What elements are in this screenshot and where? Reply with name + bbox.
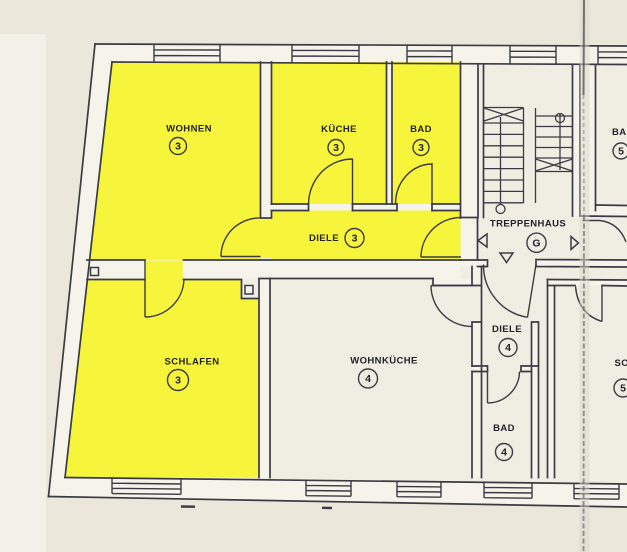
svg-text:WOHNKÜCHE: WOHNKÜCHE bbox=[350, 356, 417, 367]
svg-text:G: G bbox=[532, 237, 540, 249]
svg-text:3: 3 bbox=[175, 375, 181, 387]
svg-text:WOHNEN: WOHNEN bbox=[166, 124, 212, 135]
svg-text:3: 3 bbox=[175, 141, 181, 153]
svg-text:5: 5 bbox=[618, 146, 624, 158]
svg-text:KÜCHE: KÜCHE bbox=[321, 124, 357, 135]
svg-text:5: 5 bbox=[620, 383, 626, 395]
svg-text:3: 3 bbox=[352, 233, 358, 245]
svg-text:4: 4 bbox=[501, 447, 507, 459]
svg-text:DIELE: DIELE bbox=[492, 324, 522, 335]
svg-text:TREPPENHAUS: TREPPENHAUS bbox=[490, 219, 566, 230]
svg-text:BAD: BAD bbox=[612, 127, 627, 138]
svg-text:3: 3 bbox=[333, 142, 339, 154]
svg-text:3: 3 bbox=[418, 142, 424, 154]
svg-text:BAD: BAD bbox=[410, 124, 432, 135]
svg-text:4: 4 bbox=[505, 342, 511, 354]
svg-text:SCHLAFEN: SCHLAFEN bbox=[165, 357, 220, 368]
svg-text:4: 4 bbox=[365, 373, 371, 385]
svg-text:DIELE: DIELE bbox=[309, 233, 339, 244]
svg-text:BAD: BAD bbox=[493, 423, 515, 434]
svg-text:SCHLAFEN: SCHLAFEN bbox=[615, 358, 627, 369]
